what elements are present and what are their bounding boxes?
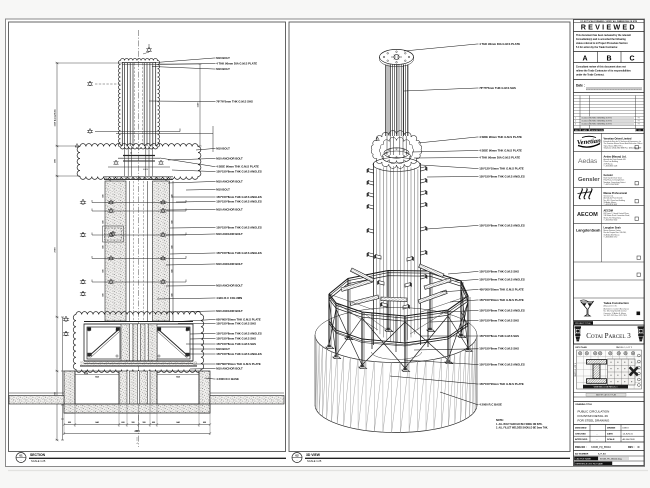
- svg-text:Langdon Seah: Langdon Seah: [604, 227, 622, 230]
- svg-text:relieve the Trade Contractor o: relieve the Trade Contractor of its resp…: [576, 70, 632, 73]
- svg-text:Gensler: Gensler: [578, 177, 600, 183]
- svg-text:T +853 2833 1710: T +853 2833 1710: [604, 236, 618, 238]
- svg-text:VENETIAN COTAI PARCEL 3: VENETIAN COTAI PARCEL 3: [594, 386, 618, 389]
- svg-text:4 THK 90mm DIA G.M.S PLATE: 4 THK 90mm DIA G.M.S PLATE: [479, 42, 520, 46]
- svg-text:150*150*8mm THK G.M.S SHS: 150*150*8mm THK G.M.S SHS: [479, 347, 519, 351]
- svg-text:PARCEL 1, LOT 1: PARCEL 1, LOT 1: [574, 363, 577, 377]
- svg-text:(Macau) CO. LTD.: (Macau) CO. LTD.: [604, 306, 618, 308]
- svg-text:under the Trade Contract.: under the Trade Contract.: [576, 74, 605, 77]
- svg-text:150*150*8mm THK G.M.S SHS: 150*150*8mm THK G.M.S SHS: [479, 334, 519, 338]
- svg-text:M10 ANCHOR BOLT: M10 ANCHOR BOLT: [216, 232, 243, 236]
- svg-text:LWKO: LWKO: [623, 428, 630, 430]
- svg-text:APPROVED: APPROVED: [575, 438, 588, 441]
- svg-text:T +86 10 6500 0088: T +86 10 6500 0088: [604, 184, 619, 186]
- svg-text:150*150*8mm THK G.M.S ANGLES: 150*150*8mm THK G.M.S ANGLES: [479, 174, 525, 178]
- svg-text:3150B_PQ_B5010: 3150B_PQ_B5010: [591, 446, 612, 449]
- svg-text:Tel: 2875 7821 Fax: 2875 782: Tel: 2875 7821 Fax: 2875 7825: [604, 315, 627, 317]
- svg-text:PARCEL 1, LOT 2: PARCEL 1, LOT 2: [616, 346, 633, 349]
- svg-text:M10 BOLT: M10 BOLT: [216, 347, 230, 351]
- svg-text:400*200*20mm THK G.M.S PLATE: 400*200*20mm THK G.M.S PLATE: [479, 287, 524, 291]
- svg-text:SCALE: SCALE: [607, 438, 615, 441]
- svg-text:A-PLAN: A-PLAN: [598, 452, 606, 455]
- svg-text:Aedas: Aedas: [578, 158, 598, 165]
- svg-text:150*150*8mm THK G.M.S ANGLES: 150*150*8mm THK G.M.S ANGLES: [479, 308, 525, 312]
- svg-text:DATE: DATE: [607, 432, 613, 435]
- svg-text:76*76*5mm THK G.M.S SHS: 76*76*5mm THK G.M.S SHS: [216, 99, 253, 103]
- svg-text:4 SIDE 90mm THK G.M.S PLATE: 4 SIDE 90mm THK G.M.S PLATE: [216, 164, 259, 168]
- svg-text:14.JUN.15: 14.JUN.15: [623, 433, 634, 435]
- svg-text:150*150*8mm THK G.M.S ANGLES: 150*150*8mm THK G.M.S ANGLES: [216, 352, 262, 356]
- svg-text:DESIGNED: DESIGNED: [575, 428, 587, 430]
- svg-text:500: 500: [171, 220, 173, 223]
- svg-text:02: 02: [295, 454, 299, 458]
- svg-text:-: -: [297, 460, 298, 463]
- svg-text:40: 40: [130, 152, 132, 154]
- svg-text:4 BIG R.C COLUMN: 4 BIG R.C COLUMN: [216, 296, 242, 300]
- svg-text:1150 (Long Bolt): 1150 (Long Bolt): [54, 109, 57, 126]
- svg-text:500: 500: [171, 269, 173, 272]
- svg-text:Aedas (Macau) Ltd.: Aedas (Macau) Ltd.: [604, 156, 627, 159]
- svg-text:M10 BOLT: M10 BOLT: [216, 187, 230, 191]
- svg-text:MASTER LAYOUT PLAN: MASTER LAYOUT PLAN: [596, 394, 617, 397]
- svg-text:1: 1: [377, 139, 378, 141]
- svg-text:150*150*8mm THK G.M.S SHS: 150*150*8mm THK G.M.S SHS: [216, 321, 256, 325]
- svg-text:M10 ANCHOR BOLT: M10 ANCHOR BOLT: [216, 366, 243, 370]
- svg-text:1150: 1150: [198, 102, 200, 108]
- svg-text:M10 BOLT: M10 BOLT: [216, 56, 230, 60]
- svg-text:Gensler: Gensler: [604, 174, 613, 177]
- svg-text:4 THK 90mm DIA G.M.S PLATE: 4 THK 90mm DIA G.M.S PLATE: [216, 61, 257, 65]
- svg-text:4-M10: 4-M10: [143, 169, 148, 171]
- svg-text:4 SIDE 90mm THK G.M.S PLATE: 4 SIDE 90mm THK G.M.S PLATE: [479, 148, 522, 152]
- svg-text:150*150*8mm THK G.M.S SHS: 150*150*8mm THK G.M.S SHS: [216, 336, 256, 340]
- svg-text:REFERENCE DWG FILE NAME: REFERENCE DWG FILE NAME: [576, 462, 604, 465]
- svg-text:-: -: [21, 460, 22, 463]
- svg-text:150*150*8mm THK G.M.S ANGLES: 150*150*8mm THK G.M.S ANGLES: [216, 331, 262, 335]
- svg-text:REV :: REV :: [628, 446, 635, 449]
- svg-text:LangdonSeah: LangdonSeah: [576, 229, 601, 233]
- svg-text:FOUNTAIN DETAIL 29: FOUNTAIN DETAIL 29: [578, 414, 609, 418]
- svg-text:M10 ANCHOR BOLT: M10 ANCHOR BOLT: [216, 179, 243, 183]
- svg-text:M10 BOLT: M10 BOLT: [216, 146, 230, 150]
- svg-text:150*150*20mm THK G.M.S PLATE: 150*150*20mm THK G.M.S PLATE: [479, 382, 524, 386]
- svg-text:500: 500: [171, 245, 173, 248]
- svg-text:150*150*8mm THK G.M.S ANGLES: 150*150*8mm THK G.M.S ANGLES: [216, 225, 262, 229]
- svg-text:M10 ANCHOR BOLT: M10 ANCHOR BOLT: [216, 283, 243, 287]
- svg-text:Consultant review of this docu: Consultant review of this document does …: [576, 65, 626, 68]
- svg-text:150*150*8mm THK G.M.S ANGLES: 150*150*8mm THK G.M.S ANGLES: [216, 199, 262, 203]
- svg-text:A: A: [582, 55, 587, 62]
- svg-text:600*600*20mm THK G.M.S PLATE: 600*600*20mm THK G.M.S PLATE: [216, 362, 261, 366]
- svg-text:5.4 for action by the Trade Co: 5.4 for action by the Trade Contractor.: [576, 46, 618, 49]
- svg-text:500: 500: [103, 220, 105, 223]
- svg-text:1: 1: [86, 372, 87, 374]
- svg-text:M10 BOLT: M10 BOLT: [216, 67, 230, 71]
- svg-text:NOTE:: NOTE:: [496, 419, 504, 422]
- svg-text:Venetian Orient Limited: Venetian Orient Limited: [604, 138, 632, 141]
- svg-text:T +853 2833 1028: T +853 2833 1028: [604, 165, 618, 167]
- svg-text:Consultants(s) and is accorded: Consultants(s) and is accorded the follo…: [576, 38, 626, 41]
- svg-text:500: 500: [103, 269, 105, 272]
- svg-text:1. ALL BOLT SHOULD BE FIXING O: 1. ALL BOLT SHOULD BE FIXING ON SITE.: [496, 423, 543, 426]
- svg-text:76*76*5mm THK G.M.S SHS: 76*76*5mm THK G.M.S SHS: [479, 86, 516, 90]
- svg-text:4 2000 R.C BASE: 4 2000 R.C BASE: [216, 377, 239, 381]
- svg-text:01: 01: [19, 454, 23, 458]
- svg-text:DRAWN: DRAWN: [607, 427, 616, 430]
- svg-text:150*150*8mm THK G.M.S ANGLES: 150*150*8mm THK G.M.S ANGLES: [479, 277, 525, 281]
- svg-text:This document has been reviewe: This document has been reviewed by the r…: [576, 34, 631, 37]
- svg-text:M10 ANCHOR BOLT: M10 ANCHOR BOLT: [216, 262, 243, 266]
- svg-text:500: 500: [103, 245, 105, 248]
- svg-text:2. ALL FILLET WELDED SHOULD BE: 2. ALL FILLET WELDED SHOULD BE 3mm THK.: [496, 427, 548, 430]
- svg-text:150*150*8mm THK G.M.S SHS: 150*150*8mm THK G.M.S SHS: [216, 342, 256, 346]
- svg-text:CAD FILE NAME: CAD FILE NAME: [576, 458, 592, 461]
- svg-text:AS SHOWN: AS SHOWN: [623, 438, 635, 441]
- svg-text:COTAI PARCEL 3: COTAI PARCEL 3: [586, 332, 631, 340]
- svg-text:500: 500: [103, 194, 105, 197]
- svg-text:AECOM: AECOM: [604, 210, 613, 213]
- svg-text:150*150*8mm THK G.M.S ANGLES: 150*150*8mm THK G.M.S ANGLES: [216, 169, 262, 173]
- svg-text:T +853 2878 3407: T +853 2878 3407: [604, 204, 618, 206]
- svg-text:500: 500: [103, 293, 105, 296]
- svg-text:M10 ANCHOR BOLT: M10 ANCHOR BOLT: [216, 207, 243, 211]
- svg-text:SECTION: SECTION: [30, 453, 46, 457]
- svg-text:4 2000 R.C BASE: 4 2000 R.C BASE: [479, 402, 502, 406]
- svg-text:1: 1: [575, 118, 576, 120]
- svg-text:M10 ANCHOR BOLT: M10 ANCHOR BOLT: [216, 156, 243, 160]
- svg-text:150*150*8mm THK G.M.S ANGLES: 150*150*8mm THK G.M.S ANGLES: [216, 251, 262, 255]
- svg-text:150*150*8mm THK G.M.S SHS: 150*150*8mm THK G.M.S SHS: [479, 318, 519, 322]
- svg-text:15.06.15 REVISED GENERAL NOTE: 15.06.15 REVISED GENERAL NOTES: [582, 120, 613, 123]
- svg-text:15.06.15 REVISED GENERAL NOTE: 15.06.15 REVISED GENERAL NOTES: [582, 123, 613, 126]
- svg-text:B: B: [606, 55, 611, 62]
- svg-text:PUBLIC CIRCULATION: PUBLIC CIRCULATION: [578, 410, 610, 414]
- svg-text:KEY PLAN: KEY PLAN: [576, 346, 587, 349]
- svg-text:2: 2: [575, 121, 576, 123]
- svg-text:3150B_PD_B5010.dwg: 3150B_PD_B5010.dwg: [600, 459, 622, 461]
- svg-text:2700: 2700: [55, 247, 57, 253]
- svg-text:150*150*20mm THK G.M.S PLATE: 150*150*20mm THK G.M.S PLATE: [479, 298, 524, 302]
- svg-text:M10 ANCHOR BOLT: M10 ANCHOR BOLT: [216, 309, 243, 313]
- svg-text:Macau Professional: Macau Professional: [604, 192, 628, 195]
- svg-text:REVIEWED: REVIEWED: [581, 23, 637, 32]
- svg-text:150*150*8mm THK G.M.S ANGLES: 150*150*8mm THK G.M.S ANGLES: [216, 195, 262, 199]
- svg-text:4 SIDE 90mm THK G.M.S PLATE: 4 SIDE 90mm THK G.M.S PLATE: [479, 135, 522, 139]
- svg-text:AD NUMBER: AD NUMBER: [575, 452, 589, 455]
- svg-text:Date :: Date :: [576, 84, 585, 88]
- svg-text:AECOM: AECOM: [577, 212, 598, 218]
- svg-text:3D VIEW: 3D VIEW: [306, 453, 321, 457]
- svg-text:SCALE 1:25: SCALE 1:25: [31, 459, 46, 463]
- svg-text:SCALE 1:25: SCALE 1:25: [307, 459, 322, 463]
- svg-text:15.06.15 REVISED GENERAL NOTE: 15.06.15 REVISED GENERAL NOTES: [582, 117, 613, 120]
- svg-text:1: 1: [77, 145, 78, 147]
- svg-text:Yadea Construction: Yadea Construction: [604, 301, 630, 305]
- svg-text:status referred to in Project: status referred to in Project Procedure …: [576, 42, 628, 45]
- svg-text:150*150*8mm THK G.M.S ANGLES: 150*150*8mm THK G.M.S ANGLES: [479, 362, 525, 366]
- svg-text:120*120*10mm THK G.M.S PLATE: 120*120*10mm THK G.M.S PLATE: [479, 166, 524, 170]
- svg-text:DESCRIPTION: DESCRIPTION: [591, 130, 603, 132]
- svg-text:CHECKED: CHECKED: [575, 433, 586, 435]
- svg-text:150*150*8mm THK G.M.S ANGLES: 150*150*8mm THK G.M.S ANGLES: [479, 223, 525, 227]
- svg-text:T +852 3922 9000: T +852 3922 9000: [604, 219, 618, 221]
- svg-text:DRAWING TITLE: DRAWING TITLE: [576, 403, 593, 406]
- svg-text:FOR STEEL DRAWING: FOR STEEL DRAWING: [578, 419, 610, 423]
- svg-text:500: 500: [171, 293, 173, 296]
- svg-text:150*150*8mm THK G.M.S SHS: 150*150*8mm THK G.M.S SHS: [479, 269, 519, 273]
- svg-text:2884: 2884: [134, 430, 140, 433]
- svg-text:DWG NO :: DWG NO :: [575, 446, 587, 449]
- svg-text:3: 3: [575, 124, 576, 126]
- svg-text:4 THK 90mm DIA G.M.S PLATE: 4 THK 90mm DIA G.M.S PLATE: [479, 155, 520, 159]
- svg-text:C: C: [629, 55, 634, 62]
